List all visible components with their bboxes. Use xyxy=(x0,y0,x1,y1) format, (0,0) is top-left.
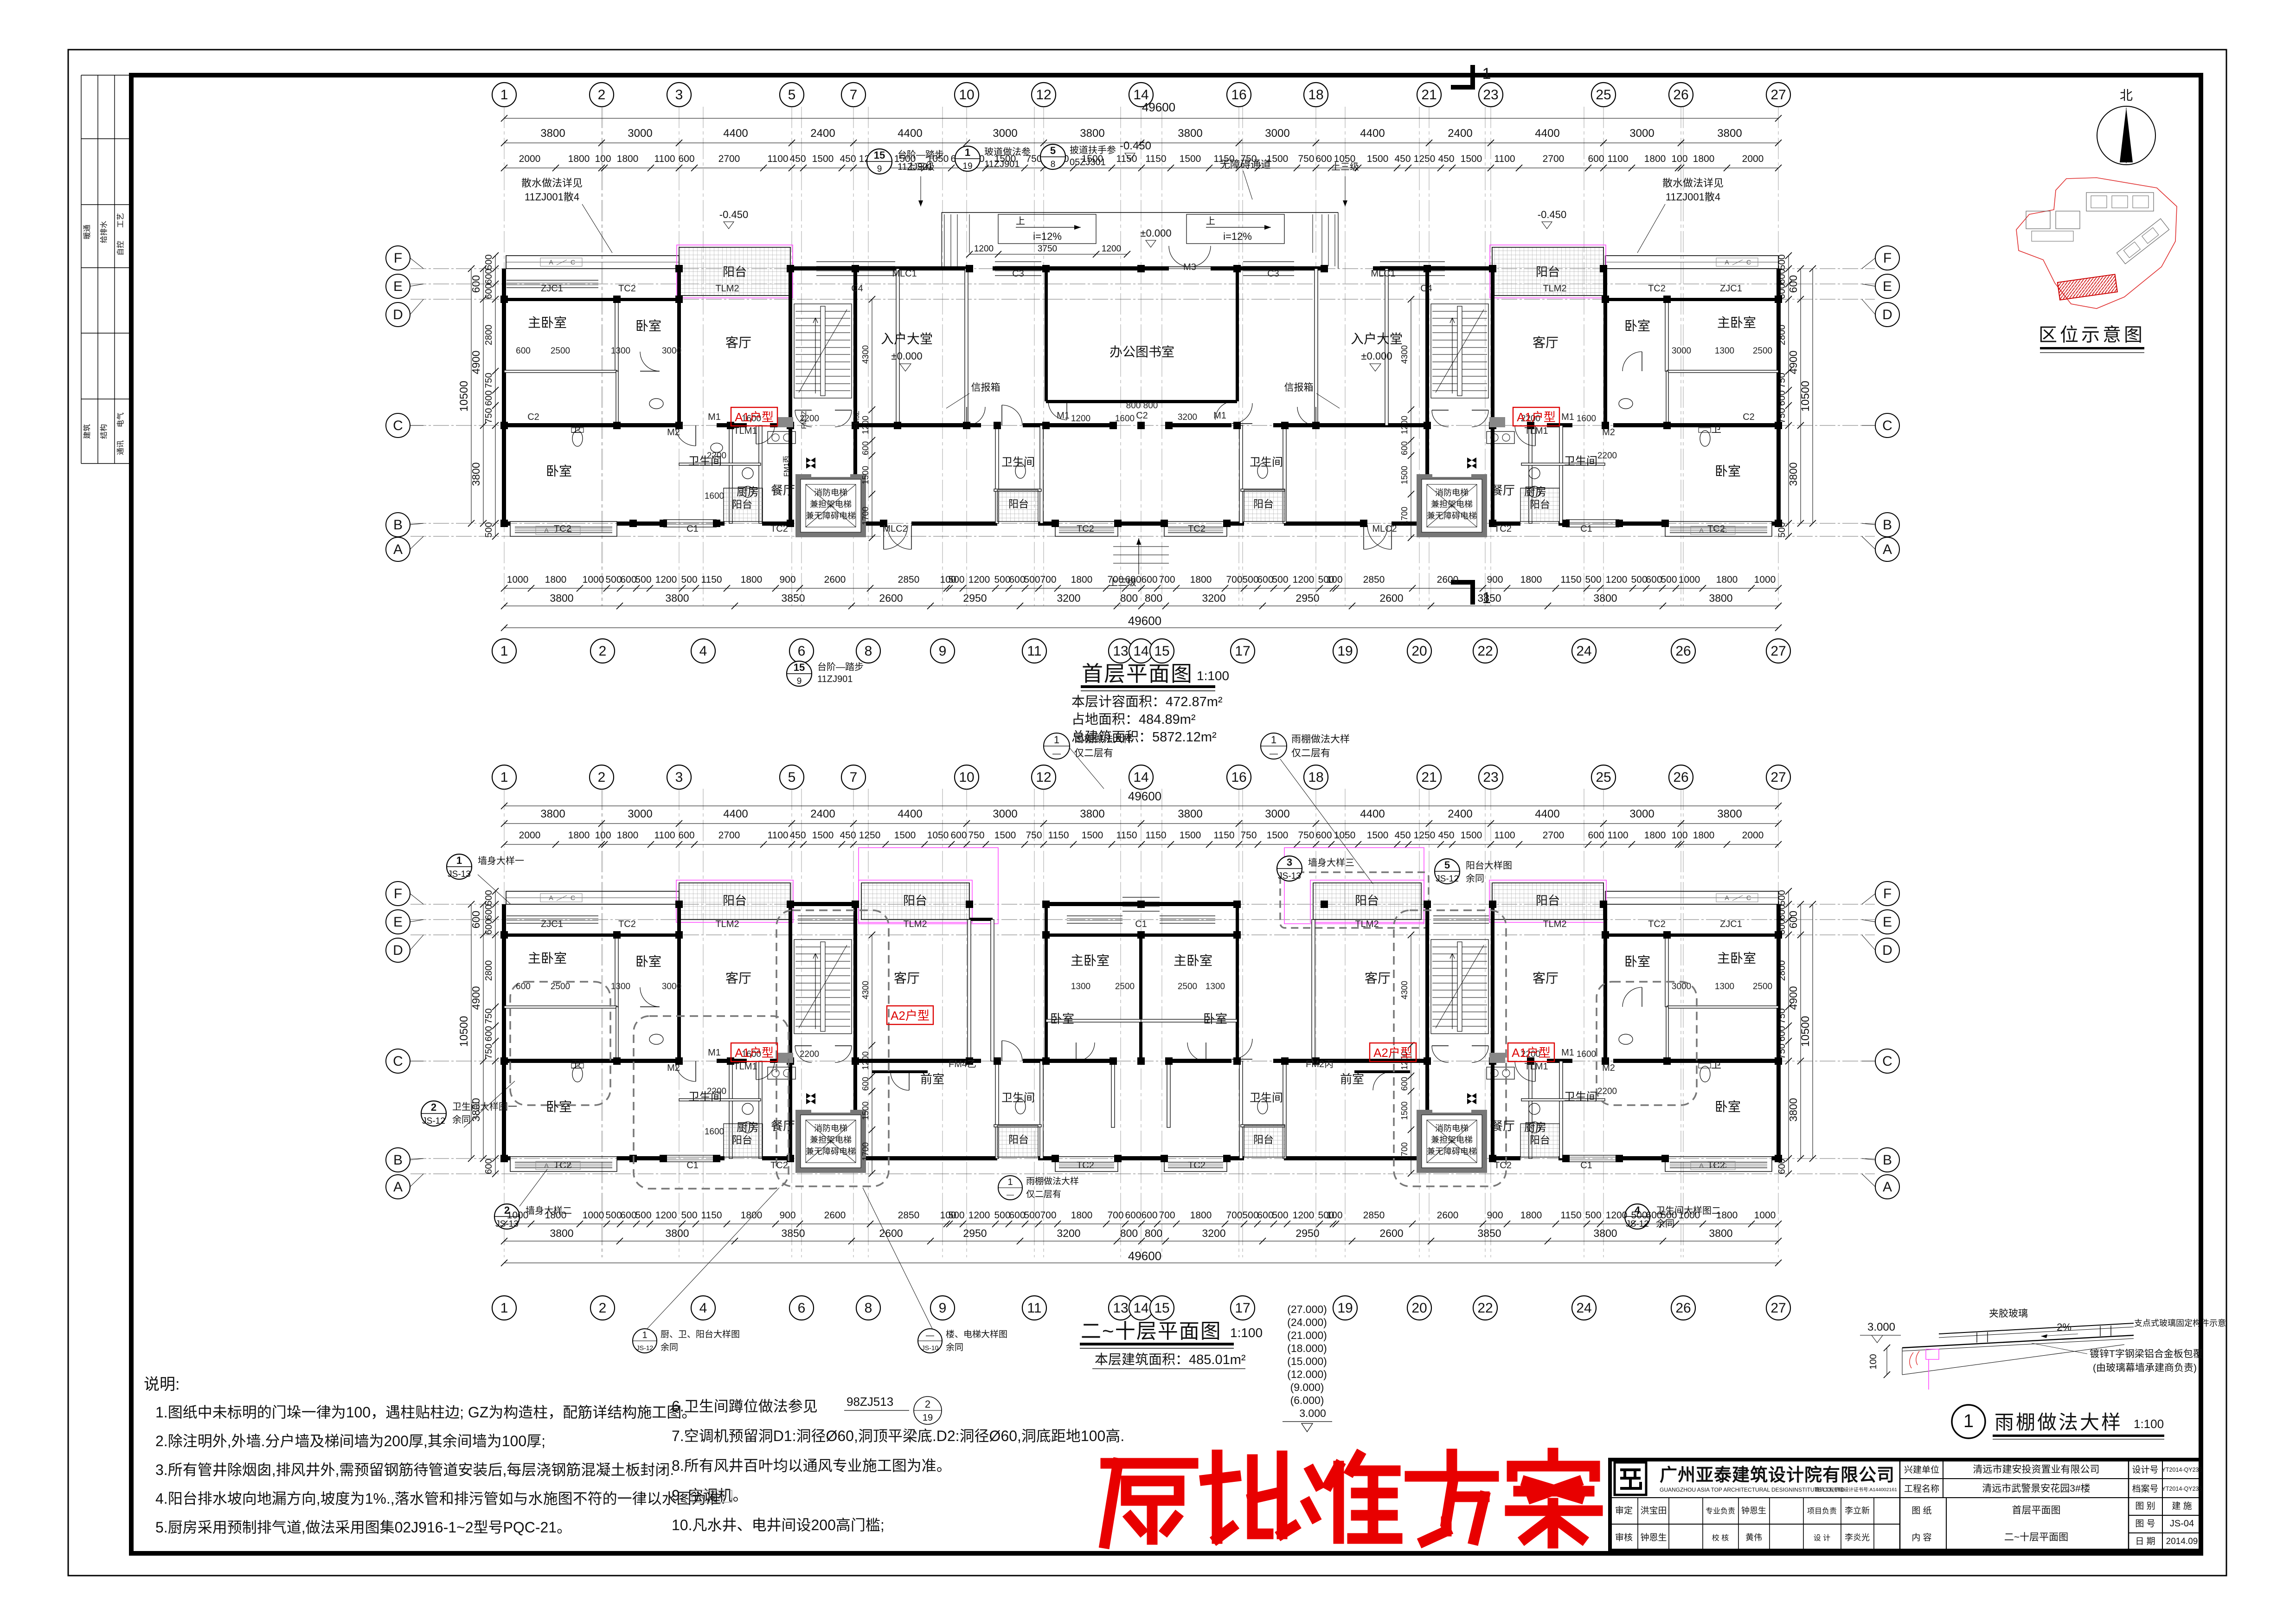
svg-text:TC2: TC2 xyxy=(770,524,788,534)
svg-text:主卧室: 主卧室 xyxy=(528,315,567,330)
svg-text:项目负责: 项目负责 xyxy=(1807,1507,1837,1515)
svg-text:夹胶玻璃: 夹胶玻璃 xyxy=(1989,1308,2028,1319)
svg-text:700: 700 xyxy=(1107,574,1123,585)
svg-text:主卧室: 主卧室 xyxy=(1717,315,1756,330)
svg-text:3800: 3800 xyxy=(1593,592,1617,604)
svg-text:消防电梯: 消防电梯 xyxy=(1435,1124,1469,1133)
svg-text:—: — xyxy=(1007,1191,1014,1199)
svg-text:750: 750 xyxy=(1240,830,1257,841)
svg-text:专业负责: 专业负责 xyxy=(1706,1507,1735,1515)
svg-text:A: A xyxy=(1699,1162,1704,1169)
svg-text:900: 900 xyxy=(1487,574,1503,585)
svg-text:2: 2 xyxy=(431,1101,436,1113)
svg-text:2000: 2000 xyxy=(519,830,541,841)
svg-text:1200: 1200 xyxy=(1400,416,1409,434)
svg-text:首层平面图: 首层平面图 xyxy=(2012,1505,2061,1516)
svg-text:700: 700 xyxy=(1226,574,1242,585)
svg-text:1100: 1100 xyxy=(654,154,675,164)
svg-text:1200: 1200 xyxy=(1606,1210,1628,1221)
svg-text:1800: 1800 xyxy=(1693,830,1715,841)
svg-text:3800: 3800 xyxy=(470,462,482,486)
svg-text:C1: C1 xyxy=(686,524,699,534)
svg-text:(21.000): (21.000) xyxy=(1287,1329,1327,1341)
svg-text:阳台: 阳台 xyxy=(1530,1134,1550,1146)
svg-text:3000: 3000 xyxy=(1265,127,1289,140)
svg-text:2200: 2200 xyxy=(800,1049,819,1059)
svg-text:A: A xyxy=(393,1179,403,1195)
svg-text:100: 100 xyxy=(1326,1210,1342,1221)
svg-text:阳台: 阳台 xyxy=(1530,499,1550,510)
svg-text:建筑工程甲级设计证书号:A144002161: 建筑工程甲级设计证书号:A144002161 xyxy=(1815,1487,1897,1493)
svg-text:14: 14 xyxy=(1133,1300,1148,1316)
svg-text:玻道做法参: 玻道做法参 xyxy=(984,147,1031,157)
svg-text:余同: 余同 xyxy=(946,1342,963,1352)
svg-text:2700: 2700 xyxy=(1543,154,1565,164)
svg-text:750: 750 xyxy=(484,1008,494,1023)
svg-text:700: 700 xyxy=(1040,1210,1056,1221)
svg-text:1200: 1200 xyxy=(968,1210,990,1221)
svg-text:3000: 3000 xyxy=(662,982,681,991)
svg-text:C: C xyxy=(1746,894,1751,901)
svg-text:1800: 1800 xyxy=(1520,1210,1542,1221)
svg-text:05ZJ301: 05ZJ301 xyxy=(1070,157,1106,167)
svg-text:1: 1 xyxy=(500,1300,508,1316)
svg-text:600: 600 xyxy=(678,830,694,841)
svg-text:1150: 1150 xyxy=(1116,830,1137,841)
svg-text:自控: 自控 xyxy=(116,241,125,256)
svg-text:1700: 1700 xyxy=(861,1142,870,1161)
svg-text:-0.450: -0.450 xyxy=(1120,140,1151,152)
svg-text:散水做法详见: 散水做法详见 xyxy=(521,177,583,189)
svg-text:1100: 1100 xyxy=(1607,830,1628,841)
svg-text:A: A xyxy=(549,894,553,901)
svg-text:1:100: 1:100 xyxy=(1197,669,1229,683)
svg-text:750: 750 xyxy=(1298,830,1314,841)
svg-text:26: 26 xyxy=(1675,1300,1691,1316)
svg-text:2500: 2500 xyxy=(551,982,570,991)
svg-text:1200: 1200 xyxy=(1102,244,1121,254)
svg-text:黄伟: 黄伟 xyxy=(1745,1533,1762,1542)
svg-text:3000: 3000 xyxy=(993,127,1017,140)
svg-text:A: A xyxy=(1725,258,1729,266)
svg-text:2850: 2850 xyxy=(1363,1210,1385,1221)
svg-text:500: 500 xyxy=(484,890,494,905)
svg-text:1500: 1500 xyxy=(861,1101,870,1120)
svg-text:49600: 49600 xyxy=(1128,1249,1161,1263)
svg-text:3.000: 3.000 xyxy=(1867,1321,1895,1333)
svg-text:C4: C4 xyxy=(851,283,863,294)
svg-text:600: 600 xyxy=(950,830,967,841)
svg-text:(18.000): (18.000) xyxy=(1287,1342,1327,1354)
svg-text:1: 1 xyxy=(1054,734,1059,746)
svg-text:2: 2 xyxy=(598,87,606,103)
svg-text:450: 450 xyxy=(789,154,806,164)
svg-text:4: 4 xyxy=(699,1300,707,1316)
svg-text:主卧室: 主卧室 xyxy=(1174,953,1212,968)
svg-text:4900: 4900 xyxy=(470,350,482,374)
svg-text:客厅: 客厅 xyxy=(1533,335,1558,350)
svg-text:600: 600 xyxy=(678,154,694,164)
svg-text:客厅: 客厅 xyxy=(1365,971,1391,985)
svg-text:1150: 1150 xyxy=(1116,154,1137,164)
svg-text:设 计: 设 计 xyxy=(1814,1534,1830,1542)
svg-text:2600: 2600 xyxy=(824,574,846,585)
svg-text:1: 1 xyxy=(1482,65,1491,83)
svg-text:厨、卫、阳台大样图: 厨、卫、阳台大样图 xyxy=(661,1329,740,1339)
svg-text:1500: 1500 xyxy=(994,830,1016,841)
svg-text:18: 18 xyxy=(1308,770,1323,785)
svg-text:(12.000): (12.000) xyxy=(1287,1368,1327,1380)
svg-text:600: 600 xyxy=(1646,1210,1662,1221)
svg-text:C2: C2 xyxy=(1743,412,1755,422)
svg-text:450: 450 xyxy=(1394,154,1411,164)
svg-text:1.图纸中未标明的门垛一律为100，遇柱贴柱边; GZ为构造: 1.图纸中未标明的门垛一律为100，遇柱贴柱边; GZ为构造柱，配筋详结构施工图… xyxy=(155,1404,696,1421)
svg-text:600: 600 xyxy=(1315,154,1332,164)
svg-text:3800: 3800 xyxy=(1080,808,1104,820)
svg-text:26: 26 xyxy=(1673,87,1688,103)
svg-text:F: F xyxy=(394,251,402,266)
svg-text:3800: 3800 xyxy=(1080,127,1104,140)
svg-text:12: 12 xyxy=(1036,87,1051,103)
svg-text:3800: 3800 xyxy=(665,592,689,604)
svg-text:M3: M3 xyxy=(1183,262,1196,272)
svg-text:1300: 1300 xyxy=(611,982,630,991)
svg-text:雨棚做法大样: 雨棚做法大样 xyxy=(1074,734,1133,745)
svg-text:1800: 1800 xyxy=(1190,574,1212,585)
svg-text:2850: 2850 xyxy=(898,1210,920,1221)
svg-text:卧室: 卧室 xyxy=(635,319,661,333)
svg-text:上: 上 xyxy=(1206,216,1215,226)
svg-text:600: 600 xyxy=(484,269,494,284)
svg-text:3800: 3800 xyxy=(1178,808,1202,820)
svg-text:1: 1 xyxy=(500,644,508,659)
svg-text:1800: 1800 xyxy=(1071,1210,1093,1221)
svg-text:审核: 审核 xyxy=(1615,1532,1633,1543)
svg-text:A: A xyxy=(544,1162,549,1169)
svg-text:1150: 1150 xyxy=(1145,830,1166,841)
svg-text:余同: 余同 xyxy=(661,1342,678,1352)
svg-text:3800: 3800 xyxy=(540,127,565,140)
svg-text:500: 500 xyxy=(1631,1210,1647,1221)
svg-text:1700: 1700 xyxy=(1400,1142,1409,1161)
svg-text:2950: 2950 xyxy=(963,1227,987,1239)
svg-text:A: A xyxy=(1699,527,1704,534)
svg-text:500: 500 xyxy=(1585,574,1601,585)
svg-text:4400: 4400 xyxy=(1360,127,1385,140)
svg-text:2500: 2500 xyxy=(1115,982,1135,991)
svg-text:1500: 1500 xyxy=(1400,466,1409,484)
svg-text:TC2: TC2 xyxy=(1707,1160,1725,1171)
svg-text:22: 22 xyxy=(1477,644,1493,659)
svg-text:M2: M2 xyxy=(667,427,680,438)
svg-text:B: B xyxy=(1883,517,1892,533)
svg-text:暖通: 暖通 xyxy=(83,225,91,239)
svg-text:JS-12: JS-12 xyxy=(422,1116,445,1126)
svg-text:500: 500 xyxy=(635,1210,651,1221)
svg-text:B: B xyxy=(1883,1152,1892,1168)
svg-text:27: 27 xyxy=(1770,770,1786,785)
svg-text:E: E xyxy=(1883,279,1892,294)
svg-text:M1: M1 xyxy=(1213,411,1226,421)
svg-text:JS-13: JS-13 xyxy=(1278,871,1301,881)
svg-text:设计号: 设计号 xyxy=(2132,1465,2158,1475)
svg-text:4400: 4400 xyxy=(1360,808,1385,820)
svg-text:750: 750 xyxy=(484,408,494,423)
svg-text:卧室: 卧室 xyxy=(635,954,661,969)
svg-text:800: 800 xyxy=(1120,592,1138,604)
svg-text:500: 500 xyxy=(635,574,651,585)
svg-text:M1: M1 xyxy=(708,412,721,422)
svg-text:主卧室: 主卧室 xyxy=(1071,953,1110,968)
svg-text:2850: 2850 xyxy=(898,574,920,585)
svg-text:阳台: 阳台 xyxy=(1008,498,1029,510)
svg-text:20: 20 xyxy=(1411,644,1427,659)
svg-text:FM1丙: FM1丙 xyxy=(782,456,790,476)
svg-text:1200: 1200 xyxy=(655,1210,677,1221)
svg-text:100: 100 xyxy=(595,830,611,841)
svg-text:2500: 2500 xyxy=(551,346,570,356)
svg-text:钟恩生: 钟恩生 xyxy=(1741,1506,1766,1515)
svg-text:5: 5 xyxy=(1050,145,1056,156)
svg-text:TLM2: TLM2 xyxy=(1543,283,1566,294)
svg-text:JS-12: JS-12 xyxy=(636,1344,654,1352)
svg-text:墙身大样一: 墙身大样一 xyxy=(478,856,524,866)
svg-text:1000: 1000 xyxy=(583,574,604,585)
svg-text:兼担架电梯: 兼担架电梯 xyxy=(810,1135,852,1145)
svg-text:2200: 2200 xyxy=(800,414,819,424)
svg-text:1800: 1800 xyxy=(545,574,567,585)
svg-text:校 核: 校 核 xyxy=(1712,1534,1729,1542)
svg-text:11: 11 xyxy=(1027,644,1041,659)
svg-text:10500: 10500 xyxy=(458,1016,470,1047)
svg-text:1700: 1700 xyxy=(1400,507,1409,525)
svg-text:A: A xyxy=(1883,542,1892,557)
svg-text:1300: 1300 xyxy=(1715,982,1734,991)
svg-text:北: 北 xyxy=(2120,88,2133,103)
svg-text:3000: 3000 xyxy=(1629,808,1654,820)
svg-text:(9.000): (9.000) xyxy=(1290,1381,1324,1393)
svg-text:B: B xyxy=(393,517,403,533)
svg-text:TC2: TC2 xyxy=(1077,524,1094,534)
svg-text:TC2: TC2 xyxy=(618,919,636,929)
svg-text:M1: M1 xyxy=(1057,411,1070,421)
svg-text:3800: 3800 xyxy=(1178,127,1202,140)
svg-text:2600: 2600 xyxy=(1437,1210,1459,1221)
svg-text:雨棚做法大样: 雨棚做法大样 xyxy=(1026,1176,1079,1186)
svg-text:3200: 3200 xyxy=(1178,412,1197,422)
svg-text:450: 450 xyxy=(1438,830,1454,841)
svg-text:9: 9 xyxy=(939,644,947,659)
svg-text:MLC2: MLC2 xyxy=(883,524,907,534)
svg-text:区位示意图: 区位示意图 xyxy=(2039,325,2145,345)
svg-text:通讯: 通讯 xyxy=(116,440,125,455)
svg-text:卧室: 卧室 xyxy=(1624,954,1650,969)
svg-text:500: 500 xyxy=(484,254,494,270)
svg-text:600: 600 xyxy=(1588,830,1604,841)
svg-text:FM2丙: FM2丙 xyxy=(1306,1059,1334,1069)
svg-text:1: 1 xyxy=(500,770,508,785)
svg-text:C1: C1 xyxy=(1580,524,1592,534)
svg-text:工艺: 工艺 xyxy=(116,213,125,228)
svg-text:(27.000): (27.000) xyxy=(1287,1303,1327,1315)
svg-text:2: 2 xyxy=(925,1398,930,1410)
svg-text:23: 23 xyxy=(1483,770,1498,785)
svg-text:上: 上 xyxy=(1016,216,1025,226)
svg-text:600: 600 xyxy=(1009,574,1025,585)
svg-text:C: C xyxy=(393,418,403,433)
svg-text:C: C xyxy=(393,1054,403,1069)
svg-text:1000: 1000 xyxy=(1679,1210,1700,1221)
svg-text:台阶—踏步: 台阶—踏步 xyxy=(817,662,864,672)
svg-text:消防电梯: 消防电梯 xyxy=(1435,488,1469,497)
svg-text:1150: 1150 xyxy=(701,574,722,585)
svg-text:F: F xyxy=(1883,251,1892,266)
svg-text:26: 26 xyxy=(1673,770,1688,785)
svg-text:1200: 1200 xyxy=(861,1051,870,1070)
svg-text:3800: 3800 xyxy=(540,808,565,820)
svg-text:MLC1: MLC1 xyxy=(892,269,917,279)
svg-text:3200: 3200 xyxy=(1057,1227,1080,1239)
svg-text:600: 600 xyxy=(516,346,531,356)
svg-text:M2: M2 xyxy=(1602,427,1615,438)
svg-text:镀锌T字钢梁铝合金板包覆: 镀锌T字钢梁铝合金板包覆 xyxy=(2090,1349,2203,1359)
svg-text:4300: 4300 xyxy=(1400,981,1409,999)
svg-text:台阶—踏步: 台阶—踏步 xyxy=(898,149,944,160)
svg-text:600: 600 xyxy=(484,390,494,405)
svg-text:餐厅: 餐厅 xyxy=(771,483,795,497)
svg-text:TC2: TC2 xyxy=(554,524,571,534)
svg-text:800: 800 xyxy=(1120,1227,1138,1239)
svg-text:B: B xyxy=(393,1152,403,1168)
svg-text:1: 1 xyxy=(1963,1411,1974,1431)
svg-text:ZJC1: ZJC1 xyxy=(1720,283,1742,294)
svg-text:15: 15 xyxy=(794,662,805,673)
svg-text:TC2: TC2 xyxy=(1077,1160,1094,1171)
svg-text:11ZJ001散4: 11ZJ001散4 xyxy=(1666,191,1720,203)
svg-text:1100: 1100 xyxy=(1607,154,1628,164)
svg-text:24: 24 xyxy=(1576,1300,1591,1316)
svg-text:C: C xyxy=(720,1493,725,1501)
svg-text:TLM1: TLM1 xyxy=(1524,426,1548,436)
svg-text:1250: 1250 xyxy=(859,830,881,841)
svg-text:卫: 卫 xyxy=(1711,423,1721,435)
svg-text:600: 600 xyxy=(1588,154,1604,164)
svg-text:TLM2: TLM2 xyxy=(715,283,739,294)
svg-text:JS-10: JS-10 xyxy=(922,1344,939,1352)
svg-text:阳台: 阳台 xyxy=(1253,498,1274,510)
svg-text:20: 20 xyxy=(1411,1300,1427,1316)
svg-text:15: 15 xyxy=(874,149,885,161)
svg-text:1600: 1600 xyxy=(705,491,724,501)
svg-text:前室: 前室 xyxy=(920,1072,944,1086)
svg-text:2700: 2700 xyxy=(718,154,740,164)
svg-text:D: D xyxy=(393,307,403,322)
svg-text:阳台: 阳台 xyxy=(1536,894,1560,908)
svg-text:D: D xyxy=(393,943,403,958)
svg-text:JS-13: JS-13 xyxy=(448,869,471,879)
svg-text:500: 500 xyxy=(1272,574,1288,585)
svg-text:10500: 10500 xyxy=(458,381,470,412)
svg-text:1800: 1800 xyxy=(568,830,590,841)
svg-text:13: 13 xyxy=(1113,644,1128,659)
svg-text:E: E xyxy=(1883,914,1892,930)
svg-text:1500: 1500 xyxy=(1082,830,1103,841)
svg-text:厨房: 厨房 xyxy=(1524,486,1546,498)
svg-text:1300: 1300 xyxy=(611,346,630,356)
svg-text:1250: 1250 xyxy=(1414,830,1436,841)
svg-text:700: 700 xyxy=(1159,1210,1175,1221)
svg-text:700: 700 xyxy=(1040,574,1056,585)
svg-text:ZJC1: ZJC1 xyxy=(1720,919,1742,929)
svg-text:TC2: TC2 xyxy=(1188,524,1206,534)
svg-text:1500: 1500 xyxy=(1267,830,1289,841)
svg-text:3000: 3000 xyxy=(1629,127,1654,140)
svg-text:钟恩生: 钟恩生 xyxy=(1640,1532,1667,1543)
svg-text:M1: M1 xyxy=(1561,412,1574,422)
svg-text:1500: 1500 xyxy=(1367,830,1389,841)
svg-text:10: 10 xyxy=(959,770,974,785)
svg-text:1500: 1500 xyxy=(1461,830,1482,841)
svg-text:2950: 2950 xyxy=(1296,592,1319,604)
svg-text:支点式玻璃固定构件示意: 支点式玻璃固定构件示意 xyxy=(2134,1319,2226,1328)
svg-text:450: 450 xyxy=(840,830,856,841)
svg-text:2: 2 xyxy=(599,1300,607,1316)
svg-text:2000: 2000 xyxy=(519,154,541,164)
svg-text:3800: 3800 xyxy=(1717,127,1742,140)
svg-text:1500: 1500 xyxy=(894,830,916,841)
svg-text:广州亚泰建筑设计院有限公司: 广州亚泰建筑设计院有限公司 xyxy=(1660,1466,1895,1485)
svg-text:(15.000): (15.000) xyxy=(1287,1355,1327,1367)
svg-text:信报箱: 信报箱 xyxy=(1284,382,1314,393)
svg-text:阳台: 阳台 xyxy=(903,894,927,908)
svg-text:1000: 1000 xyxy=(1679,574,1700,585)
svg-text:8: 8 xyxy=(865,1300,872,1316)
svg-text:结构: 结构 xyxy=(100,424,108,439)
svg-text:1100: 1100 xyxy=(767,830,788,841)
svg-text:给排水: 给排水 xyxy=(100,221,108,243)
svg-text:700: 700 xyxy=(1107,1210,1123,1221)
svg-text:3000: 3000 xyxy=(1672,982,1691,991)
svg-text:3800: 3800 xyxy=(1709,592,1732,604)
svg-text:24: 24 xyxy=(1576,644,1591,659)
svg-text:4400: 4400 xyxy=(1535,127,1559,140)
svg-text:1600: 1600 xyxy=(1115,414,1135,424)
svg-text:1800: 1800 xyxy=(1716,574,1738,585)
svg-text:18: 18 xyxy=(1308,87,1323,103)
svg-text:餐厅: 餐厅 xyxy=(771,1119,795,1133)
svg-text:3000: 3000 xyxy=(628,808,652,820)
svg-text:信报箱: 信报箱 xyxy=(971,382,1000,393)
svg-text:7: 7 xyxy=(850,770,858,785)
svg-text:兼无障碍电梯: 兼无障碍电梯 xyxy=(1427,1147,1477,1156)
svg-text:A: A xyxy=(1883,1179,1892,1195)
svg-text:1500: 1500 xyxy=(812,830,834,841)
svg-text:阳台: 阳台 xyxy=(1355,894,1379,908)
svg-text:19: 19 xyxy=(1337,644,1353,659)
svg-text:25: 25 xyxy=(1596,770,1611,785)
svg-text:500: 500 xyxy=(681,574,697,585)
svg-text:16: 16 xyxy=(1231,87,1246,103)
svg-text:兴建单位: 兴建单位 xyxy=(1904,1465,1939,1475)
svg-text:10: 10 xyxy=(959,87,974,103)
svg-text:阳台: 阳台 xyxy=(1008,1134,1029,1146)
svg-text:2700: 2700 xyxy=(1543,830,1565,841)
svg-text:600: 600 xyxy=(484,1159,494,1174)
svg-text:卧室: 卧室 xyxy=(546,464,572,478)
svg-text:700: 700 xyxy=(1159,574,1175,585)
svg-text:15: 15 xyxy=(1154,644,1169,659)
svg-text:500: 500 xyxy=(1242,1210,1258,1221)
